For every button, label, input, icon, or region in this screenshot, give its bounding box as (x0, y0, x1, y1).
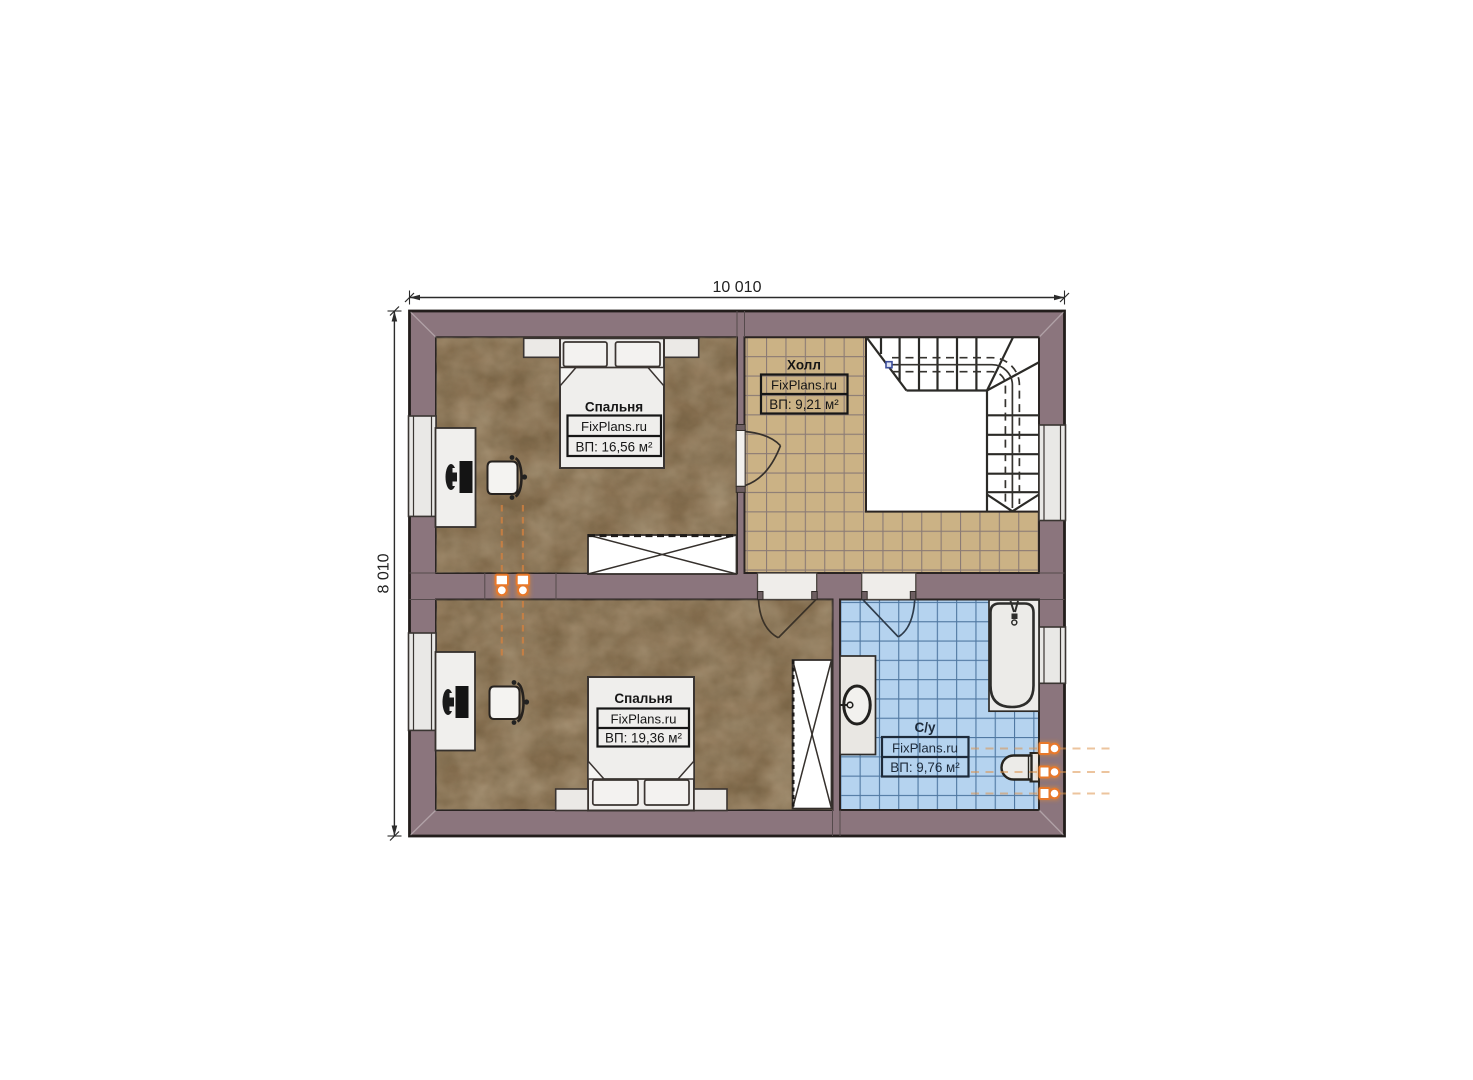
svg-text:ВП: 9,21 м²: ВП: 9,21 м² (769, 397, 839, 412)
svg-text:Спальня: Спальня (585, 400, 643, 415)
svg-text:Холл: Холл (787, 358, 821, 373)
svg-text:FixPlans.ru: FixPlans.ru (771, 378, 837, 393)
svg-text:ВП: 19,36 м²: ВП: 19,36 м² (605, 731, 682, 746)
svg-text:8 010: 8 010 (376, 553, 393, 593)
svg-text:Спальня: Спальня (614, 691, 672, 706)
svg-text:С/у: С/у (914, 720, 936, 735)
svg-text:FixPlans.ru: FixPlans.ru (892, 741, 958, 756)
svg-text:FixPlans.ru: FixPlans.ru (581, 419, 647, 434)
svg-text:ВП: 16,56 м²: ВП: 16,56 м² (576, 440, 653, 455)
svg-text:ВП: 9,76 м²: ВП: 9,76 м² (890, 760, 960, 775)
svg-text:10 010: 10 010 (713, 279, 762, 296)
svg-text:FixPlans.ru: FixPlans.ru (611, 712, 677, 727)
